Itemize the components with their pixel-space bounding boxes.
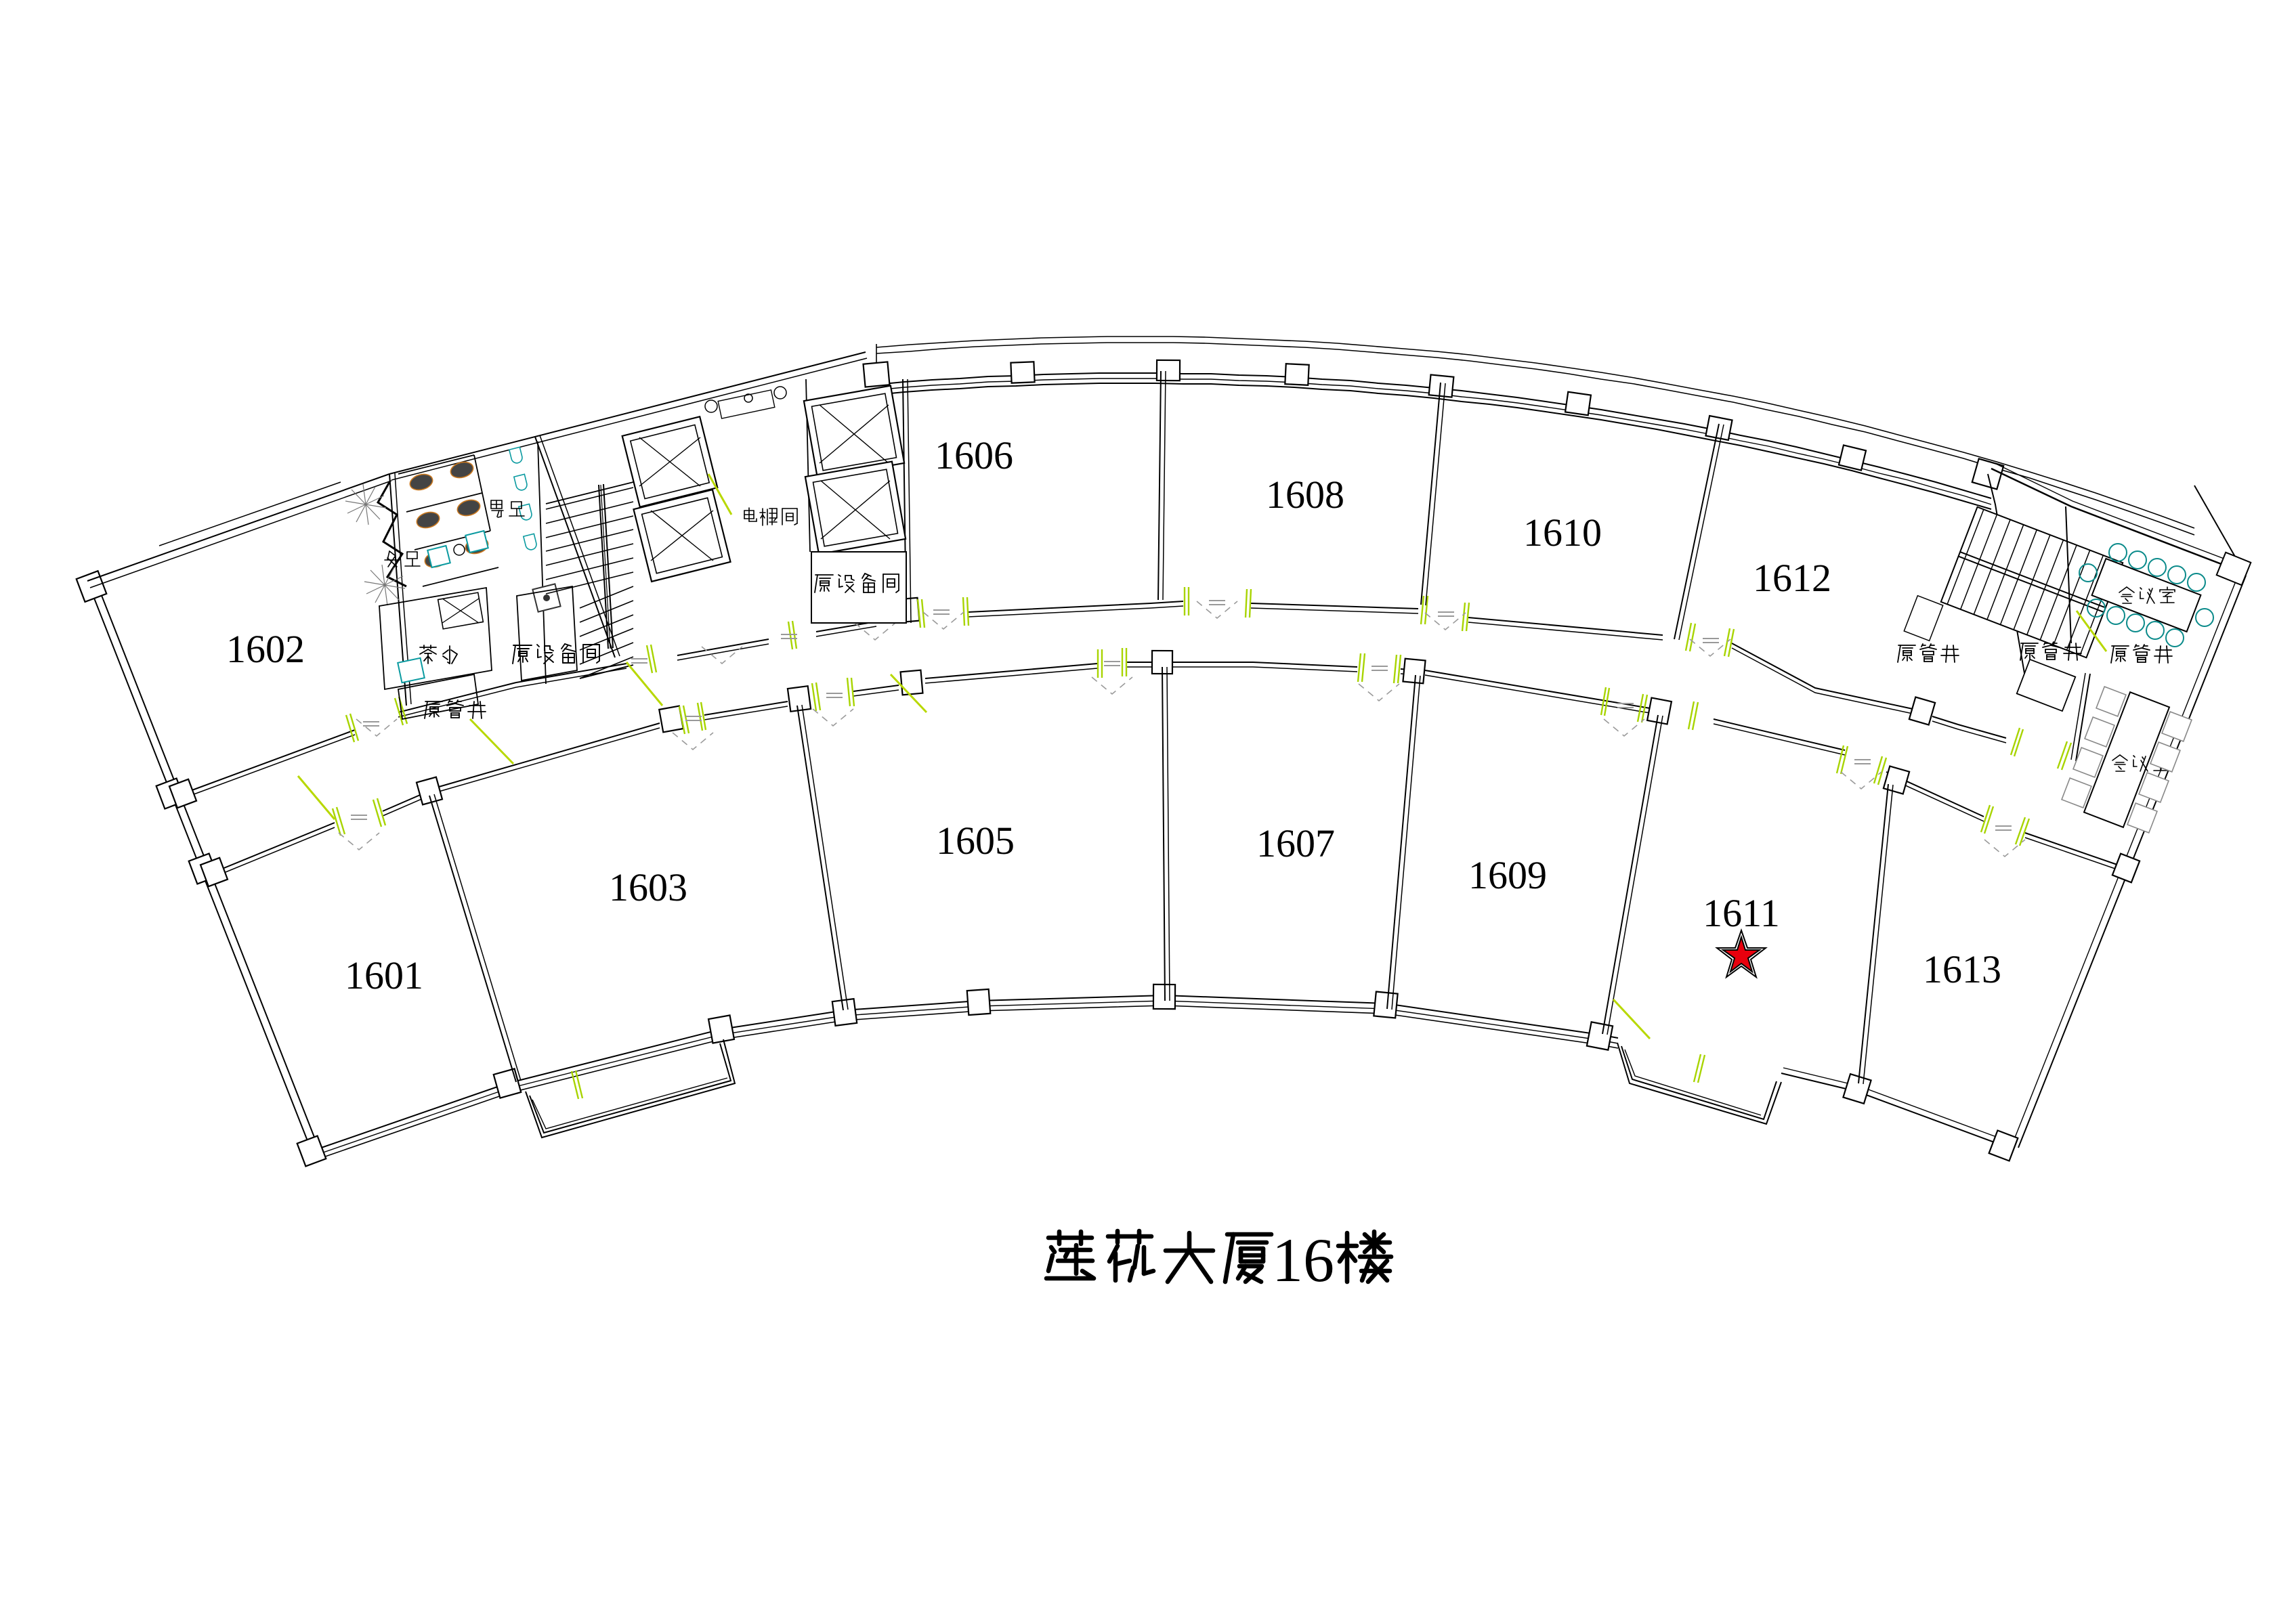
svg-text:16: 16 [1272,1226,1334,1295]
svg-text:1606: 1606 [935,433,1013,477]
svg-text:1602: 1602 [226,627,305,671]
svg-text:1610: 1610 [1523,511,1602,555]
svg-text:1609: 1609 [1468,853,1547,897]
svg-text:1608: 1608 [1266,473,1344,517]
svg-text:1613: 1613 [1923,947,2001,991]
svg-text:1607: 1607 [1256,821,1335,865]
svg-text:1605: 1605 [936,819,1015,863]
svg-text:1603: 1603 [609,865,687,909]
svg-text:1612: 1612 [1753,556,1831,600]
svg-text:1601: 1601 [345,953,423,997]
